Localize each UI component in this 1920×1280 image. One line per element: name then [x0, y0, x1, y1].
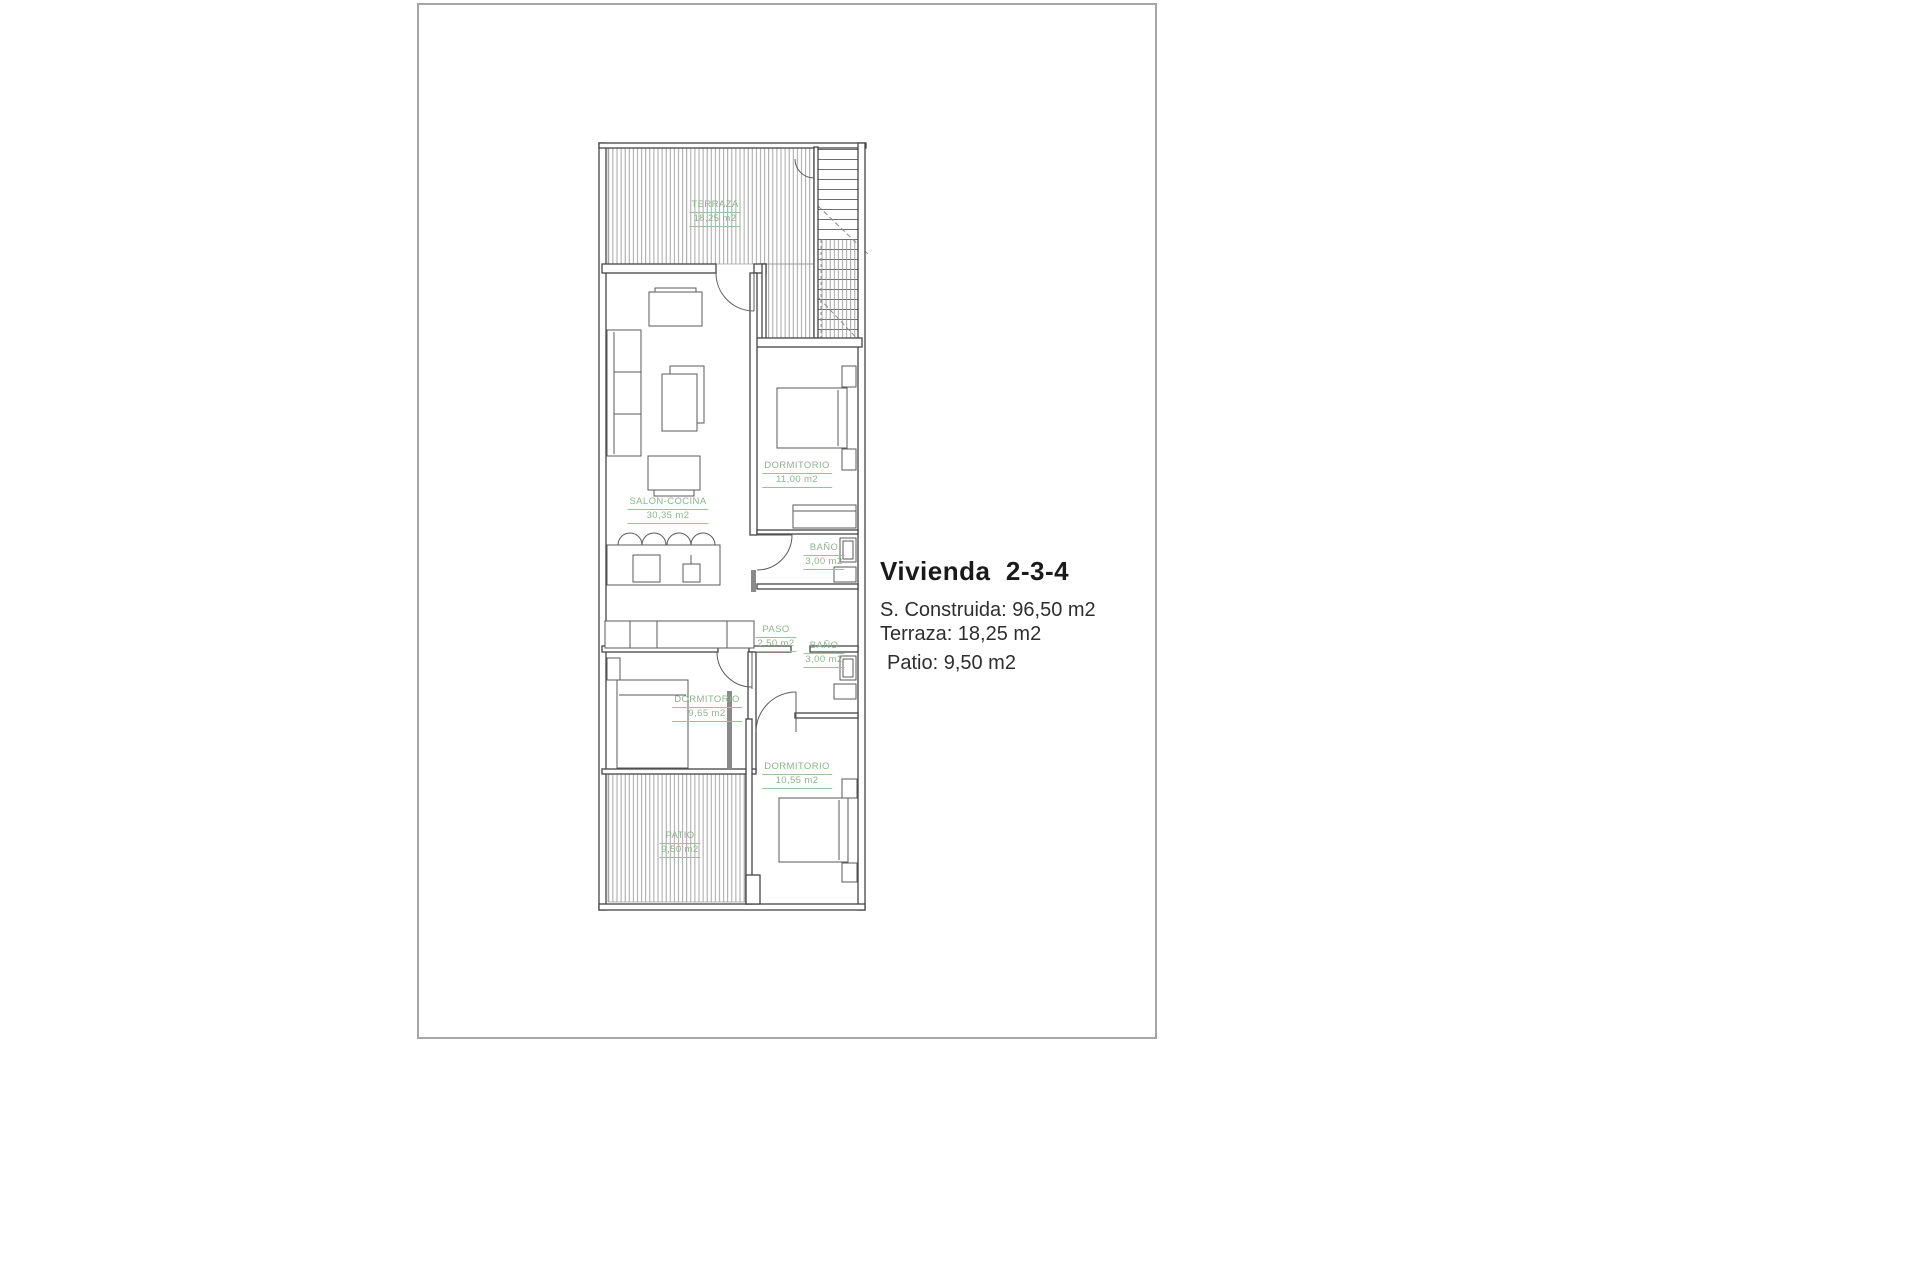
kitchen-island: [607, 545, 720, 585]
room-label-dormitorio-3: DORMITORIO 10,55 m2: [762, 761, 832, 789]
room-label-patio: PATIO 9,50 m2: [659, 830, 700, 858]
unit-title: Vivienda 2-3-4: [880, 556, 1096, 587]
kitchen-sink: [633, 555, 660, 582]
bed-3: [779, 798, 848, 862]
floor-plan-drawing: [595, 140, 871, 915]
room-label-terraza: TERRAZA 18,25 m2: [689, 199, 740, 227]
kitchen-hob: [683, 564, 700, 582]
closet-2: [607, 658, 620, 680]
screenshot-root: { "page": { "background": "#ffffff", "sh…: [0, 0, 1920, 1280]
kitchen-counter: [605, 621, 754, 648]
room-label-salon: SALON-COCINA 30,35 m2: [627, 496, 708, 524]
terrace-hatch-area: [608, 148, 814, 340]
room-label-bano-1: BAÑO 3,00 m2: [803, 542, 844, 570]
dresser-1: [793, 505, 856, 528]
room-label-dormitorio-1: DORMITORIO 11,00 m2: [762, 460, 832, 488]
terrace-area-line: Terraza: 18,25 m2: [880, 622, 1096, 646]
bed-1: [777, 388, 847, 448]
room-label-bano-2: BAÑO 3,00 m2: [803, 640, 844, 668]
info-panel: Vivienda 2-3-4 S. Construida: 96,50 m2 T…: [880, 556, 1096, 675]
room-label-paso: PASO 2,50 m2: [755, 624, 796, 652]
toilet-2: [834, 684, 856, 699]
built-area-line: S. Construida: 96,50 m2: [880, 598, 1096, 622]
sofa: [607, 330, 641, 456]
patio-area-line: Patio: 9,50 m2: [880, 651, 1096, 675]
room-label-dormitorio-2: DORMITORIO 9,65 m2: [672, 694, 742, 722]
